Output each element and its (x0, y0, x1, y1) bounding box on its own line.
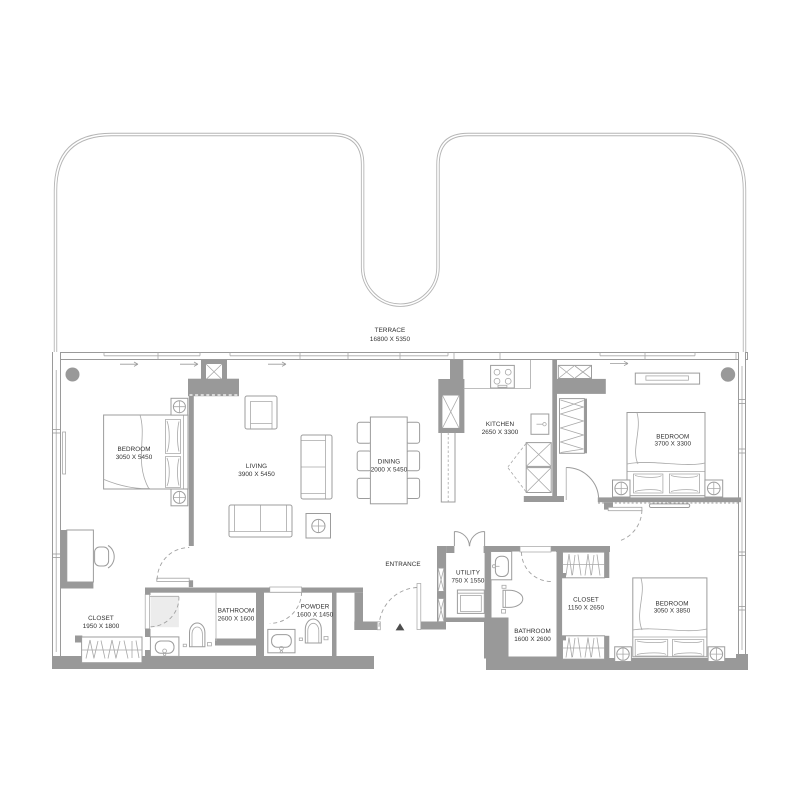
svg-text:DINING: DINING (378, 459, 401, 466)
svg-text:2000 X 5450: 2000 X 5450 (371, 467, 408, 474)
svg-text:3700 X 3300: 3700 X 3300 (654, 441, 691, 448)
svg-text:2600 X 1600: 2600 X 1600 (218, 616, 255, 623)
svg-text:1950 X 1800: 1950 X 1800 (83, 623, 120, 630)
svg-text:BATHROOM: BATHROOM (218, 608, 255, 615)
svg-text:CLOSET: CLOSET (573, 597, 599, 604)
svg-text:2650 X 3300: 2650 X 3300 (482, 429, 519, 436)
svg-text:TERRACE: TERRACE (375, 327, 406, 334)
svg-text:1600 X 1450: 1600 X 1450 (297, 612, 334, 619)
svg-text:16800 X 5350: 16800 X 5350 (370, 336, 411, 343)
svg-text:POWDER: POWDER (301, 604, 330, 611)
svg-text:BATHROOM: BATHROOM (514, 628, 551, 635)
svg-text:CLOSET: CLOSET (88, 615, 114, 622)
svg-text:3900 X 5450: 3900 X 5450 (238, 471, 275, 478)
svg-text:KITCHEN: KITCHEN (486, 421, 515, 428)
svg-text:BEDROOM: BEDROOM (656, 434, 689, 441)
svg-text:1150 X 2650: 1150 X 2650 (568, 605, 605, 612)
svg-text:BEDROOM: BEDROOM (117, 446, 150, 453)
svg-text:3050 X 5450: 3050 X 5450 (116, 454, 153, 461)
svg-text:ENTRANCE: ENTRANCE (385, 561, 420, 568)
svg-text:BEDROOM: BEDROOM (655, 601, 688, 608)
svg-text:750 X 1550: 750 X 1550 (451, 578, 484, 585)
svg-text:1600 X 2600: 1600 X 2600 (514, 636, 551, 643)
svg-text:3050 X 3850: 3050 X 3850 (654, 608, 691, 615)
svg-text:UTILITY: UTILITY (456, 570, 481, 577)
svg-text:LIVING: LIVING (246, 463, 267, 470)
